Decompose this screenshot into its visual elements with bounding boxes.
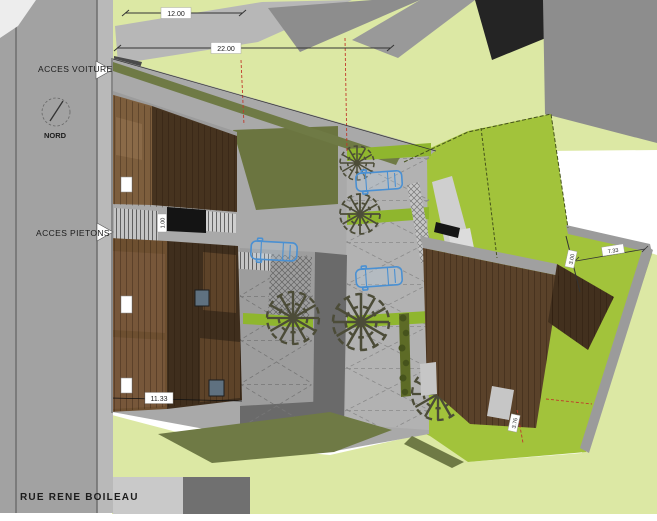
plant-row [399,313,411,397]
roof-window [209,380,224,396]
svg-text:12.00: 12.00 [167,11,185,18]
svg-text:22.00: 22.00 [217,46,235,53]
patio [420,362,437,396]
dimension-label-12: 12.00 [161,8,191,19]
dimension-label-22: 22.00 [211,43,241,54]
central-wall [313,252,347,424]
skylight-window [121,177,132,192]
svg-text:1.00: 1.00 [161,218,167,229]
page-margin [0,514,657,521]
car-access-label: ACCES VOITURE [38,64,113,74]
neighbor-building [183,477,250,515]
roof-window [195,290,209,306]
street-label: RUE RENE BOILEAU [20,492,139,503]
road [0,0,97,513]
dimension-label-100: 1.00 [158,214,167,232]
porch [167,207,206,233]
dimension-label-1133: 11.33 [145,393,173,404]
svg-text:11.33: 11.33 [151,396,168,403]
left-building-south [110,238,242,412]
pedestrian-access-label: ACCES PIETONS [36,228,110,238]
skylight-window [121,378,132,393]
north-label: NORD [44,131,67,140]
site-plan: ACCES VOITURE ACCES PIETONS NORD RUE REN… [0,0,657,521]
skylight-window [121,296,132,313]
site-plan-canvas: ACCES VOITURE ACCES PIETONS NORD RUE REN… [0,0,657,521]
